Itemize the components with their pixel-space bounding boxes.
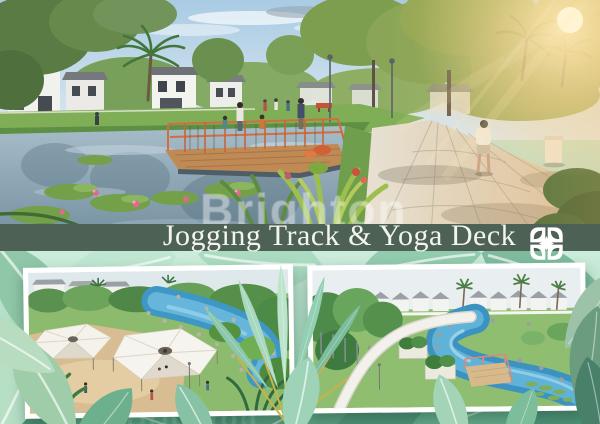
flyer-canvas: Brighton <box>0 0 600 424</box>
jogging-track-scene <box>312 268 581 409</box>
brighton-logo-icon <box>528 225 565 262</box>
photo-jogging-track <box>307 263 587 414</box>
yoga-deck-scene <box>28 269 290 414</box>
banner-title: Jogging Track & Yoga Deck <box>163 222 516 249</box>
photo-yoga-deck <box>23 264 295 419</box>
title-banner: Jogging Track & Yoga Deck <box>0 224 600 251</box>
